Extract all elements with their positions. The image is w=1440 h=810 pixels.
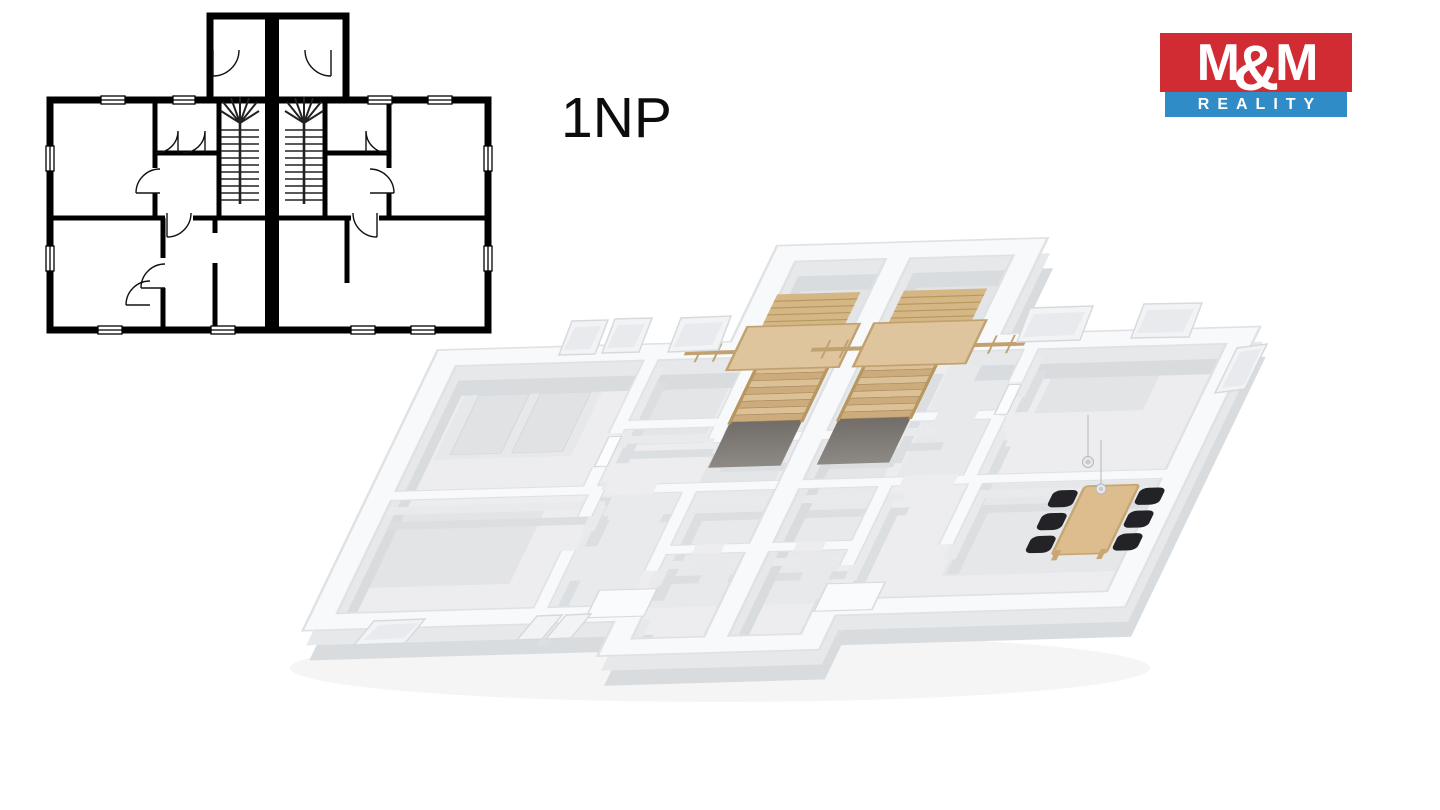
page: 1NP M & M REALITY <box>0 0 1440 810</box>
stair-landing <box>853 320 986 367</box>
floorplan-3d <box>0 0 1440 810</box>
stair-landing <box>727 324 860 371</box>
